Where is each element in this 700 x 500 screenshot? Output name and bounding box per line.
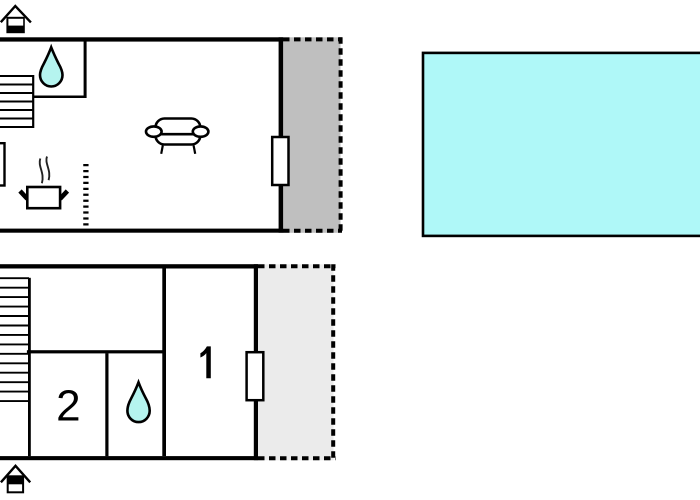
- svg-text:2: 2: [56, 381, 80, 430]
